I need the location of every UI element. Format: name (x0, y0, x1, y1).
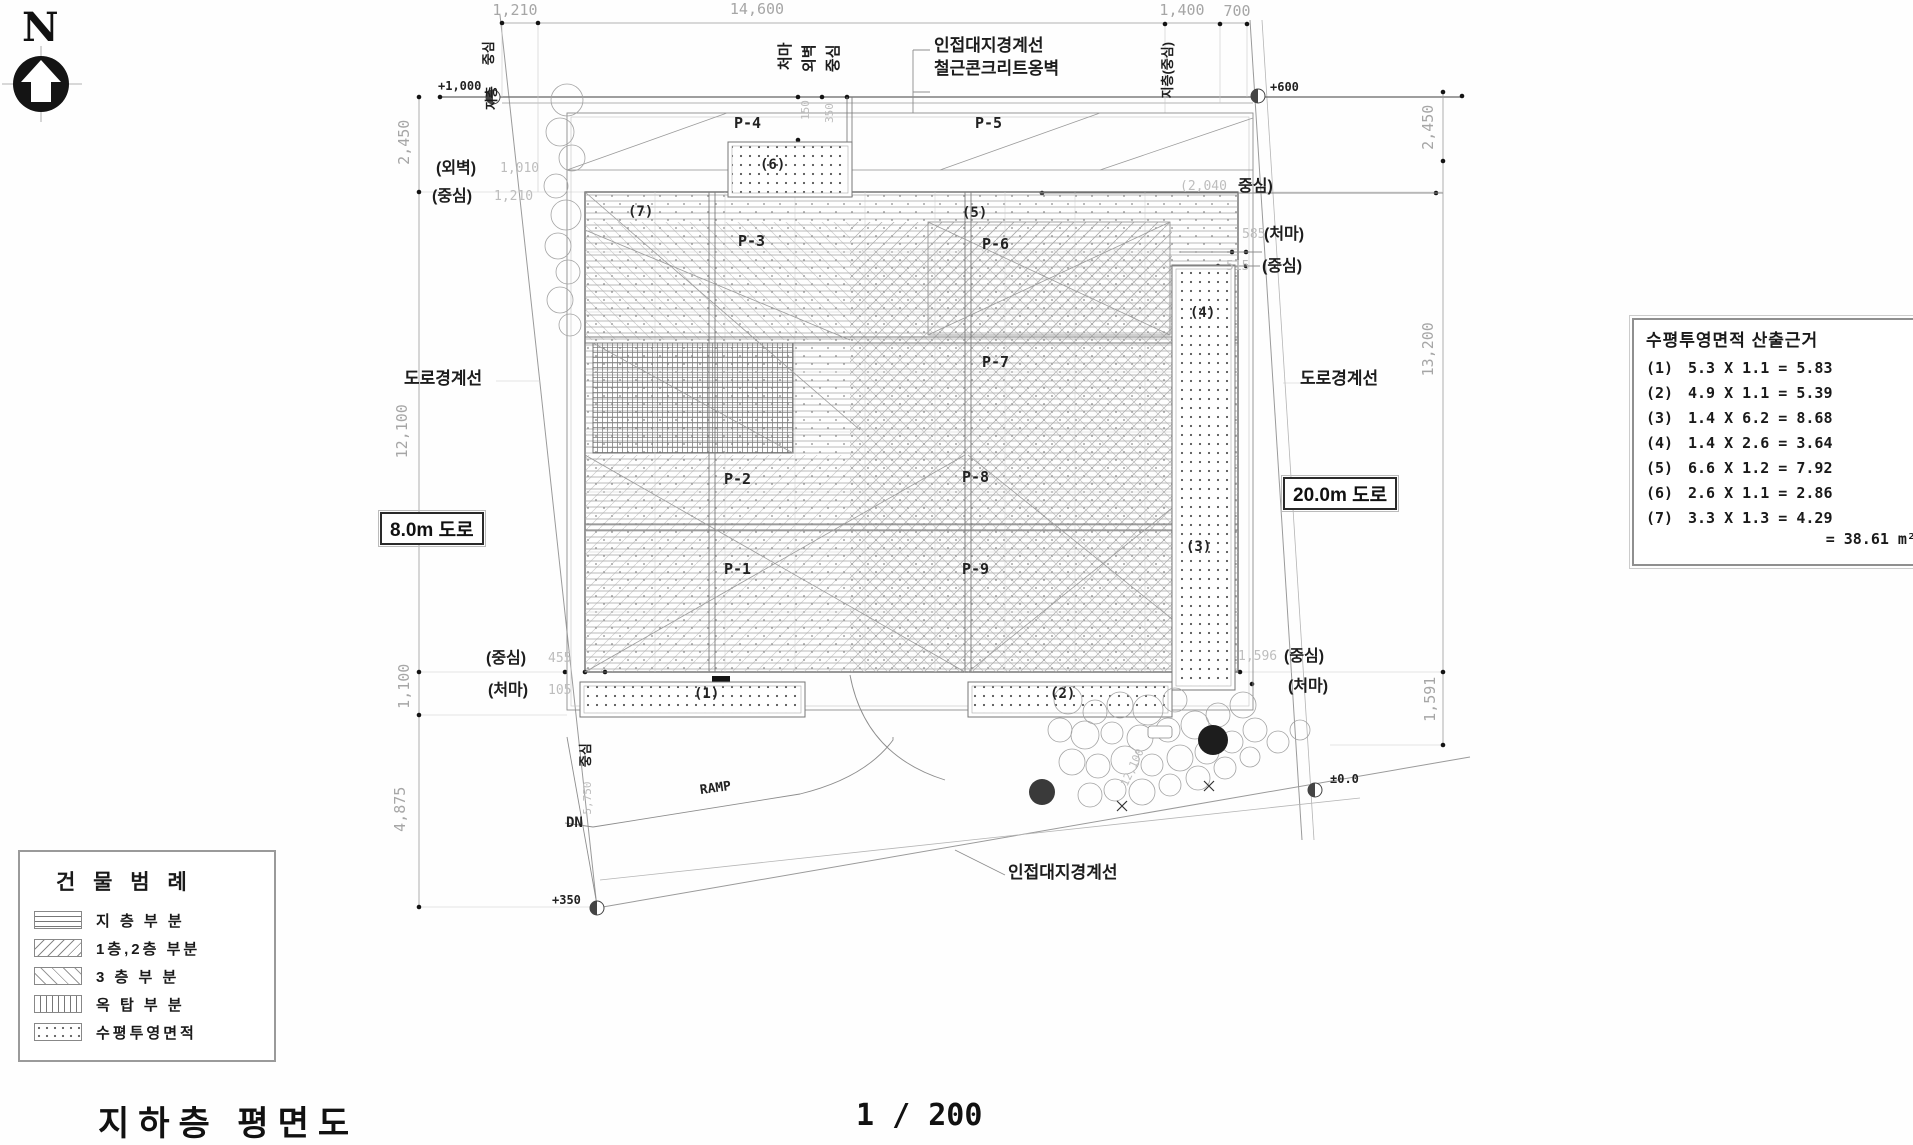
mark-rot-dim-350: 350 (824, 98, 836, 128)
mark-rot-center: 중심 (826, 38, 843, 78)
calc-row: (1) 5.3 X 1.1 = 5.83 (1646, 355, 1913, 380)
dim-top-700: 700 (1212, 3, 1262, 20)
label-retaining-wall: 철근콘크리트옹벽 (934, 60, 1059, 79)
mark-tr-center1-dim: (2,040 (1180, 180, 1227, 194)
area-2: (2) (1050, 687, 1075, 702)
area-7: (7) (628, 205, 653, 220)
mark-left-outer-dim: 1,010 (500, 162, 539, 176)
label-adjacent-boundary-top: 인접대지경계선 (934, 37, 1043, 56)
calc-row: (4) 1.4 X 2.6 = 3.64 (1646, 430, 1913, 455)
mark-tr-eave: (처마) (1264, 226, 1304, 244)
dim-top-1400: 1,400 (1150, 2, 1214, 19)
north-letter: N (22, 4, 59, 51)
area-4: (4) (1190, 306, 1215, 321)
mark-ramp-rot-dim: 5,750 (582, 778, 594, 818)
dim-right-1591: 1,591 (1422, 669, 1439, 729)
hatch-diagonal-forward-swatch (34, 939, 82, 957)
mark-left-outer-wall: (외벽) (436, 160, 476, 178)
legend-item-label: 3 층 부 분 (96, 966, 179, 987)
mark-tr-rot-floor-center: 지층(중심) (1161, 30, 1175, 110)
calc-row-no: (5) (1646, 459, 1688, 477)
drawing-sheet: N 1,210 14,600 1,400 700 2,450 12,100 1,… (0, 0, 1913, 1145)
dim-left-12100: 12,100 (394, 396, 411, 466)
legend-item-label: 1층,2층 부분 (96, 938, 200, 959)
calc-total: = 38.61 m² (1646, 530, 1913, 556)
calc-row: (5) 6.6 X 1.2 = 7.92 (1646, 455, 1913, 480)
calc-row-no: (7) (1646, 509, 1688, 527)
mark-br-center: (중심) (1284, 648, 1324, 666)
calc-row-eq: 4.9 X 1.1 = 5.39 (1688, 384, 1833, 402)
mark-tr-center2-dim: 515 (1226, 260, 1249, 274)
calc-row: (6) 2.6 X 1.1 = 2.86 (1646, 480, 1913, 505)
calc-row-eq: 1.4 X 2.6 = 3.64 (1688, 434, 1833, 452)
calc-row-eq: 1.4 X 6.2 = 8.68 (1688, 409, 1833, 427)
zone-p6: P-6 (982, 236, 1009, 253)
mark-rot-eave: 처마 (778, 36, 795, 76)
legend-item: 1층,2층 부분 (34, 934, 264, 962)
calc-row-no: (2) (1646, 384, 1688, 402)
zone-p7: P-7 (982, 354, 1009, 371)
legend-title: 건 물 범 례 (56, 866, 264, 896)
legend-item-label: 옥 탑 부 분 (96, 994, 185, 1015)
dim-top-14600: 14,600 (712, 1, 802, 18)
dim-left-1100: 1,100 (396, 656, 413, 716)
label-road-boundary-right: 도로경계선 (1300, 370, 1378, 389)
calc-title: 수평투영면적 산출근거 (1646, 326, 1913, 351)
calc-row-no: (4) (1646, 434, 1688, 452)
mark-bl-eave-dim: 105 (548, 684, 571, 698)
mark-tr-center2: (중심) (1262, 258, 1302, 276)
area-1: (1) (694, 687, 719, 702)
mark-bl-center: (중심) (486, 650, 526, 668)
area-3: (3) (1186, 540, 1211, 555)
calc-row: (3) 1.4 X 6.2 = 8.68 (1646, 405, 1913, 430)
mark-rot-dim-150: 150 (800, 95, 812, 125)
dim-right-2450: 2,450 (1420, 97, 1437, 157)
level-plus1000: +1,000 (438, 80, 481, 93)
hatch-dots-swatch (34, 1023, 82, 1041)
legend-item: 3 층 부 분 (34, 962, 264, 990)
sheet-title: 지하층 평면도 (98, 1096, 358, 1145)
dim-left-4875: 4,875 (392, 779, 409, 839)
level-plus350: +350 (552, 894, 581, 907)
mark-tr-eave-dim: 585 (1242, 228, 1265, 242)
plan-linework (0, 0, 1913, 1145)
building-legend: 건 물 범 례 지 층 부 분 1층,2층 부분 3 층 부 분 옥 탑 부 분… (18, 850, 276, 1062)
dim-top-1210: 1,210 (480, 2, 550, 19)
mark-ramp-rot-center: 중심 (579, 735, 593, 775)
mark-bl-eave: (처마) (488, 682, 528, 700)
mark-bl-center-dim: 455 (548, 652, 571, 666)
legend-item: 수평투영면적 (34, 1018, 264, 1046)
calc-row-no: (3) (1646, 409, 1688, 427)
area-calc-table: 수평투영면적 산출근거 (1) 5.3 X 1.1 = 5.83 (2) 4.9… (1632, 318, 1913, 566)
level-plus600: +600 (1270, 81, 1299, 94)
zone-p1: P-1 (724, 561, 751, 578)
calc-row-eq: 6.6 X 1.2 = 7.92 (1688, 459, 1833, 477)
calc-row: (7) 3.3 X 1.3 = 4.29 (1646, 505, 1913, 530)
zone-p4: P-4 (734, 115, 761, 132)
mark-br-eave: (처마) (1288, 678, 1328, 696)
dim-right-13200: 13,200 (1420, 314, 1437, 384)
area-6: (6) (760, 158, 785, 173)
zone-p8: P-8 (962, 469, 989, 486)
label-road-20m: 20.0m 도로 (1283, 477, 1397, 510)
zone-p3: P-3 (738, 233, 765, 250)
hatch-vertical-swatch (34, 995, 82, 1013)
mark-tl-rot-center: 중심 (482, 33, 496, 73)
mark-rot-outer: 외벽 (802, 38, 819, 78)
label-road-8m: 8.0m 도로 (380, 512, 484, 545)
legend-item: 옥 탑 부 분 (34, 990, 264, 1018)
legend-item-label: 지 층 부 분 (96, 910, 185, 931)
hatch-diagonal-back-swatch (34, 967, 82, 985)
calc-row-no: (6) (1646, 484, 1688, 502)
mark-left-center-dim: 1,210 (494, 190, 533, 204)
label-road-boundary-left: 도로경계선 (404, 370, 482, 389)
hatch-horizontal-swatch (34, 911, 82, 929)
calc-row-eq: 5.3 X 1.1 = 5.83 (1688, 359, 1833, 377)
mark-left-center: (중심) (432, 188, 472, 206)
calc-row-no: (1) (1646, 359, 1688, 377)
area-5: (5) (962, 206, 987, 221)
zone-p5: P-5 (975, 115, 1002, 132)
mark-br-center-dim: 1,596 (1238, 650, 1277, 664)
label-adjacent-boundary-bottom: 인접대지경계선 (1008, 864, 1117, 883)
dn-label: DN (566, 816, 583, 831)
calc-row-eq: 3.3 X 1.3 = 4.29 (1688, 509, 1833, 527)
dim-left-2450: 2,450 (396, 112, 413, 172)
zone-p9: P-9 (962, 561, 989, 578)
sheet-scale: 1 / 200 (856, 1098, 982, 1133)
calc-row-eq: 2.6 X 1.1 = 2.86 (1688, 484, 1833, 502)
calc-row: (2) 4.9 X 1.1 = 5.39 (1646, 380, 1913, 405)
legend-item: 지 층 부 분 (34, 906, 264, 934)
mark-tr-center1: 중심) (1238, 178, 1273, 196)
north-arrow-icon (2, 46, 82, 122)
level-zero: ±0.0 (1330, 773, 1359, 786)
legend-item-label: 수평투영면적 (96, 1022, 197, 1043)
mark-tl-rot-floor: 지층 (485, 78, 499, 118)
zone-p2: P-2 (724, 471, 751, 488)
